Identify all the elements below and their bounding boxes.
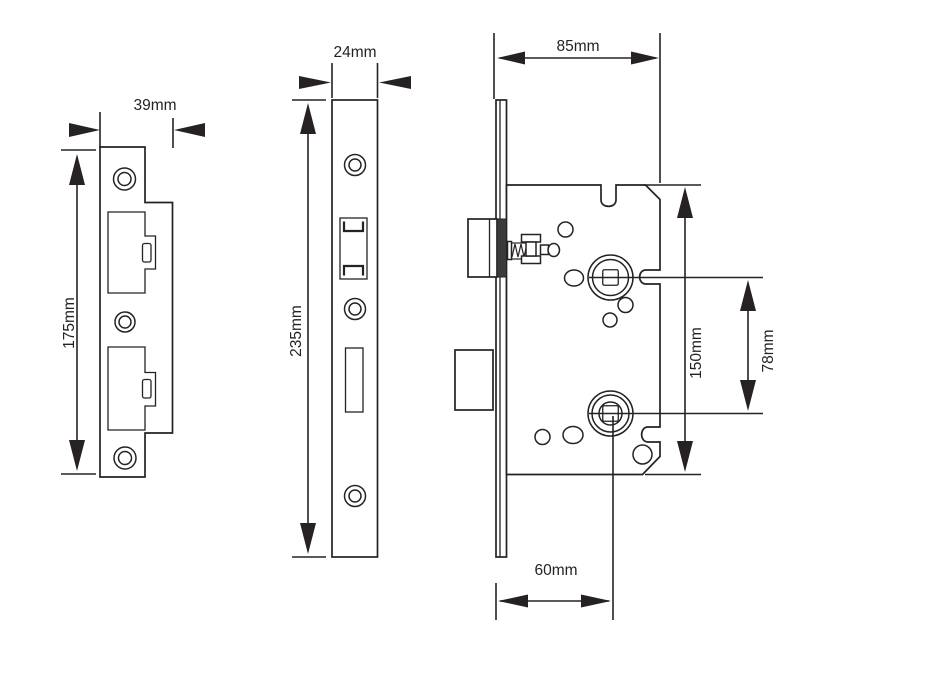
arrow-right-icon [69, 123, 100, 137]
arrow-up-icon [69, 154, 85, 185]
arrow-right-icon [631, 52, 659, 65]
case-hole [603, 313, 617, 327]
case-hole [633, 445, 652, 464]
dim-backset: 60mm [496, 562, 611, 620]
arrow-down-icon [740, 380, 756, 411]
arrow-up-icon [300, 103, 316, 134]
strike-width-label: 39mm [133, 97, 176, 114]
body-width-label: 85mm [556, 38, 599, 55]
hub-spacing-label: 78mm [760, 329, 777, 372]
lock-case-outline [507, 185, 661, 475]
faceplate-width-label: 24mm [333, 44, 376, 61]
case-hole [618, 298, 633, 313]
dim-faceplate-width: 24mm [299, 44, 411, 98]
arrow-down-icon [677, 441, 693, 472]
arrow-left-icon [498, 595, 528, 608]
dim-faceplate-height: 235mm [288, 100, 326, 557]
arrow-up-icon [740, 280, 756, 311]
strike-screw-hole-bottom [114, 447, 136, 469]
faceplate-view: 24mm 235mm [288, 44, 411, 557]
latch-bolt [468, 219, 507, 277]
strike-plate-view: 39mm 175mm [61, 97, 205, 477]
arrow-left-icon [379, 76, 411, 89]
strike-plate-outline [100, 147, 173, 477]
dim-hub-spacing: 78mm [740, 280, 777, 411]
case-slot-hole [563, 427, 583, 444]
dim-body-width: 85mm [494, 33, 660, 183]
faceplate-screw-hole-middle [345, 299, 366, 320]
strike-screw-hole-middle [115, 312, 135, 332]
faceplate-height-label: 235mm [288, 305, 305, 357]
body-height-label: 150mm [688, 327, 705, 379]
technical-drawing-page: 39mm 175mm [0, 0, 942, 700]
faceplate-screw-hole-top [345, 155, 366, 176]
arrow-right-icon [299, 76, 331, 89]
lock-body-view: 85mm 150mm 78mm 60mm [455, 33, 777, 620]
case-slot-hole [565, 270, 584, 286]
arrow-left-icon [497, 52, 525, 65]
arrow-down-icon [69, 440, 85, 471]
case-hole [535, 430, 550, 445]
arrow-right-icon [581, 595, 611, 608]
strike-screw-hole-top [114, 168, 136, 190]
deadbolt [455, 350, 493, 410]
faceplate-screw-hole-bottom [345, 486, 366, 507]
backset-label: 60mm [534, 562, 577, 579]
arrow-left-icon [174, 123, 205, 137]
case-hole [558, 222, 573, 237]
drawing-canvas: 39mm 175mm [0, 0, 942, 700]
lockbody-faceplate-edge [496, 100, 507, 557]
dim-strike-width: 39mm [69, 97, 205, 148]
dim-strike-height: 175mm [61, 150, 96, 474]
arrow-up-icon [677, 187, 693, 218]
strike-height-label: 175mm [61, 297, 78, 349]
arrow-down-icon [300, 523, 316, 554]
